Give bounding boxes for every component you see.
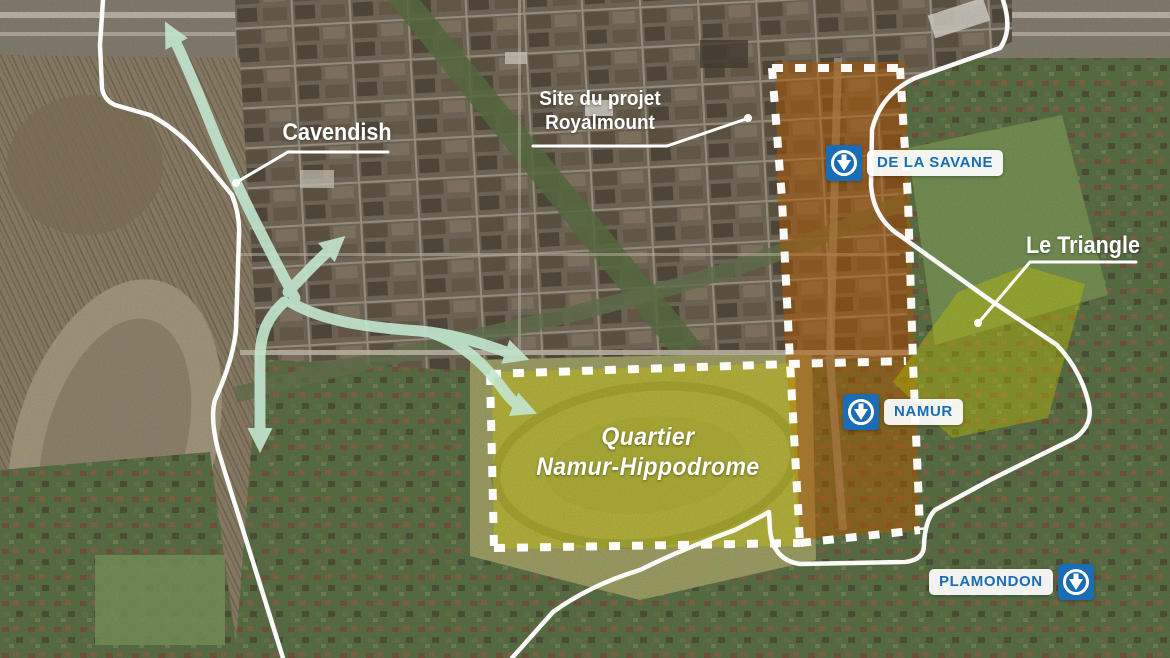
area-label-quartier-namur-hippodrome: Quartier Namur-Hippodrome: [510, 423, 786, 482]
royalmount-leader-dot: [744, 114, 752, 122]
metro-badge-plamondon: PLAMONDON: [929, 564, 1094, 600]
metro-station-name: NAMUR: [884, 399, 963, 425]
royalmount-site-label-line2: Royalmount: [519, 112, 681, 136]
map-container: Cavendish Site du projet Royalmount Le T…: [0, 0, 1170, 658]
royalmount-site-label-line1: Site du projet: [519, 88, 681, 112]
metro-station-name: DE LA SAVANE: [867, 150, 1003, 176]
metro-logo-icon: [843, 394, 879, 430]
area-label-le-triangle: Le Triangle: [993, 232, 1170, 260]
metro-logo-icon: [826, 145, 862, 181]
metro-badge-namur: NAMUR: [843, 394, 963, 430]
cavendish-leader-dot: [232, 179, 240, 187]
metro-badge-de-la-savane: DE LA SAVANE: [826, 145, 1003, 181]
street-label-cavendish: Cavendish: [247, 119, 427, 147]
royalmount-site-label: Site du projet Royalmount: [519, 88, 681, 135]
metro-station-name: PLAMONDON: [929, 569, 1053, 595]
quartier-label-line2: Namur-Hippodrome: [510, 453, 786, 483]
quartier-label-line1: Quartier: [510, 423, 786, 453]
le-triangle-leader-dot: [974, 319, 982, 327]
metro-logo-icon: [1058, 564, 1094, 600]
